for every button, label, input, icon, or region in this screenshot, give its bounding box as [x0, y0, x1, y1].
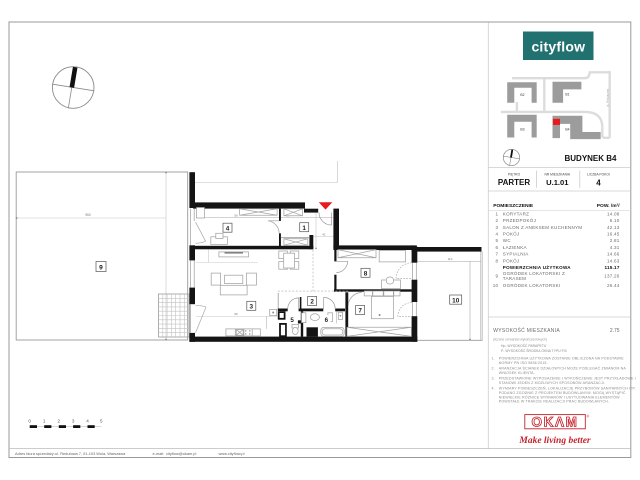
svg-text:SYPIALNIA: SYPIALNIA — [503, 252, 529, 257]
svg-text:2: 2 — [496, 218, 499, 223]
svg-text:0: 0 — [28, 418, 31, 423]
svg-text:POW. /m²/: POW. /m²/ — [597, 203, 620, 209]
svg-text:TARASEM: TARASEM — [503, 276, 526, 281]
svg-text:14.08: 14.08 — [607, 211, 620, 216]
svg-text:Hp- WYSOKOŚĆ PARAPETU: Hp- WYSOKOŚĆ PARAPETU — [501, 343, 547, 348]
svg-text:5: 5 — [100, 418, 103, 423]
svg-text:WYSOKOŚĆ MIESZKANIA: WYSOKOŚĆ MIESZKANIA — [493, 326, 560, 334]
svg-text:OKΛM: OKΛM — [532, 414, 579, 429]
svg-text:POMIESZCZENIE: POMIESZCZENIE — [493, 203, 534, 209]
svg-text:2: 2 — [310, 299, 314, 306]
svg-text:6.10: 6.10 — [610, 218, 620, 223]
svg-text:e-mail:: e-mail: — [153, 451, 165, 456]
svg-text:4: 4 — [86, 418, 89, 423]
svg-text:42.13: 42.13 — [607, 225, 620, 230]
svg-text:OGRÓDEK LOKATORSKI: OGRÓDEK LOKATORSKI — [503, 282, 561, 288]
svg-text:NIEWIELKIE RÓŻNICE WYMIARÓW I: NIEWIELKIE RÓŻNICE WYMIARÓW I USYTUOWANI… — [499, 394, 620, 399]
svg-text:4: 4 — [496, 232, 499, 237]
svg-text:7: 7 — [358, 308, 362, 315]
svg-text:ŁAZIENKA: ŁAZIENKA — [503, 245, 528, 250]
svg-text:5: 5 — [290, 317, 294, 324]
svg-text:9: 9 — [99, 264, 103, 271]
svg-text:56: 56 — [234, 213, 238, 217]
svg-text:B2: B2 — [520, 93, 524, 97]
svg-text:10: 10 — [493, 283, 499, 288]
svg-text:960: 960 — [85, 213, 91, 217]
svg-text:14.66: 14.66 — [607, 252, 620, 257]
svg-text:NORMY PN ISO 9836:2015.: NORMY PN ISO 9836:2015. — [499, 361, 548, 365]
svg-text:LICZBA POKOI: LICZBA POKOI — [587, 172, 610, 176]
svg-text:POWIERZCHNIA UŻYTKOWA: POWIERZCHNIA UŻYTKOWA — [503, 264, 571, 270]
svg-text:110: 110 — [448, 257, 453, 261]
svg-text:26.44: 26.44 — [607, 283, 620, 288]
svg-text:NR MIESZKANIA: NR MIESZKANIA — [544, 172, 570, 176]
svg-text:1: 1 — [302, 225, 306, 232]
svg-text:PARTER: PARTER — [498, 178, 531, 187]
svg-text:1.: 1. — [492, 356, 495, 360]
svg-text:WYMIARY POMIESZCZEŃ, LOKALIZAC: WYMIARY POMIESZCZEŃ, LOKALIZACJĘ PRZYBOR… — [499, 385, 636, 390]
svg-text:4.: 4. — [492, 386, 495, 390]
svg-text:8: 8 — [496, 258, 499, 263]
svg-text:B1: B1 — [565, 93, 569, 97]
svg-text:9: 9 — [496, 273, 499, 278]
svg-text:POKÓJ: POKÓJ — [503, 257, 520, 263]
svg-text:P- WYSOKOŚĆ ŚRODKA OKNA TYPU F: P- WYSOKOŚĆ ŚRODKA OKNA TYPU FIX — [501, 348, 568, 353]
svg-text:Adres biura sprzedaży:: Adres biura sprzedaży: — [15, 451, 55, 456]
svg-text:Make living better: Make living better — [518, 436, 591, 446]
svg-text:6: 6 — [496, 245, 499, 250]
svg-text:4.31: 4.31 — [610, 245, 620, 250]
svg-text:BUDYNEK B4: BUDYNEK B4 — [564, 154, 617, 163]
svg-text:2: 2 — [58, 418, 61, 423]
svg-text:137.26: 137.26 — [604, 273, 620, 278]
svg-text:cityflow@okam.pl: cityflow@okam.pl — [166, 451, 196, 456]
svg-text:www.cityflow.pl: www.cityflow.pl — [219, 451, 245, 456]
svg-text:ul. Redutowa: ul. Redutowa — [605, 89, 609, 107]
svg-text:WNIOSEK KLIENTA.: WNIOSEK KLIENTA. — [499, 371, 535, 375]
svg-text:KORYTARZ: KORYTARZ — [503, 211, 529, 216]
svg-text:B4: B4 — [565, 128, 569, 132]
svg-text:ul. Redutowa 7, 01-103 Wola, W: ul. Redutowa 7, 01-103 Wola, Warszawa — [55, 451, 126, 456]
svg-text:2.81: 2.81 — [610, 238, 620, 243]
svg-text:(liczone od warstw wykończenio: (liczone od warstw wykończeniowych) — [493, 337, 547, 341]
svg-text:PRZEDPOKÓJ: PRZEDPOKÓJ — [503, 217, 536, 223]
svg-text:7: 7 — [496, 252, 499, 257]
svg-text:®: ® — [587, 415, 590, 419]
svg-text:1: 1 — [43, 418, 46, 423]
svg-text:PRZEDSTAWIONE WYPOSAŻENIE I WY: PRZEDSTAWIONE WYPOSAŻENIE I WYKOŃCZENIE … — [499, 375, 636, 380]
svg-text:4: 4 — [226, 225, 230, 232]
svg-text:WC: WC — [503, 238, 512, 243]
svg-text:3.: 3. — [492, 376, 495, 380]
svg-text:8: 8 — [364, 271, 368, 278]
svg-text:STANOWI JEDEN Z MOŻLIWYCH SPOS: STANOWI JEDEN Z MOŻLIWYCH SPOSOBÓW ARANŻ… — [499, 380, 605, 385]
svg-text:3: 3 — [250, 304, 254, 311]
svg-text:4: 4 — [596, 178, 601, 187]
svg-text:POWSTAŁE W TRAKCIE REALIZACJI: POWSTAŁE W TRAKCIE REALIZACJI PRAC BUDOW… — [499, 400, 609, 404]
svg-text:99: 99 — [234, 312, 238, 316]
svg-text:2.: 2. — [492, 366, 495, 370]
svg-text:5: 5 — [496, 238, 499, 243]
svg-text:3: 3 — [496, 225, 499, 230]
svg-text:10: 10 — [452, 297, 460, 304]
svg-text:ARANŻACJA ŚCIANEK DZIAŁOWYCH M: ARANŻACJA ŚCIANEK DZIAŁOWYCH MOŻE PODLEG… — [499, 365, 627, 370]
svg-text:1: 1 — [496, 211, 499, 216]
svg-text:3: 3 — [72, 418, 75, 423]
svg-text:2.75: 2.75 — [610, 328, 620, 334]
svg-text:PIĘTRO: PIĘTRO — [508, 172, 521, 176]
svg-text:PODANO ZGODNIE Z PROJEKTEM BUD: PODANO ZGODNIE Z PROJEKTEM BUDOWLANYM. M… — [499, 390, 626, 395]
svg-text:SALON Z ANEKSEM KUCHENNYM: SALON Z ANEKSEM KUCHENNYM — [503, 225, 583, 230]
svg-text:POKÓJ: POKÓJ — [503, 231, 520, 237]
svg-text:115.17: 115.17 — [604, 265, 619, 270]
svg-text:U.1.01: U.1.01 — [546, 178, 569, 187]
svg-text:42: 42 — [322, 233, 326, 237]
svg-text:POWIERZCHNIA UŻYTKOWA ZOSTANIE: POWIERZCHNIA UŻYTKOWA ZOSTANIE OBLICZONA… — [499, 355, 624, 360]
svg-text:6: 6 — [325, 317, 329, 324]
svg-text:14.63: 14.63 — [607, 258, 620, 263]
svg-text:B3: B3 — [520, 128, 524, 132]
svg-text:cityflow: cityflow — [531, 38, 585, 54]
svg-text:16.45: 16.45 — [607, 232, 620, 237]
